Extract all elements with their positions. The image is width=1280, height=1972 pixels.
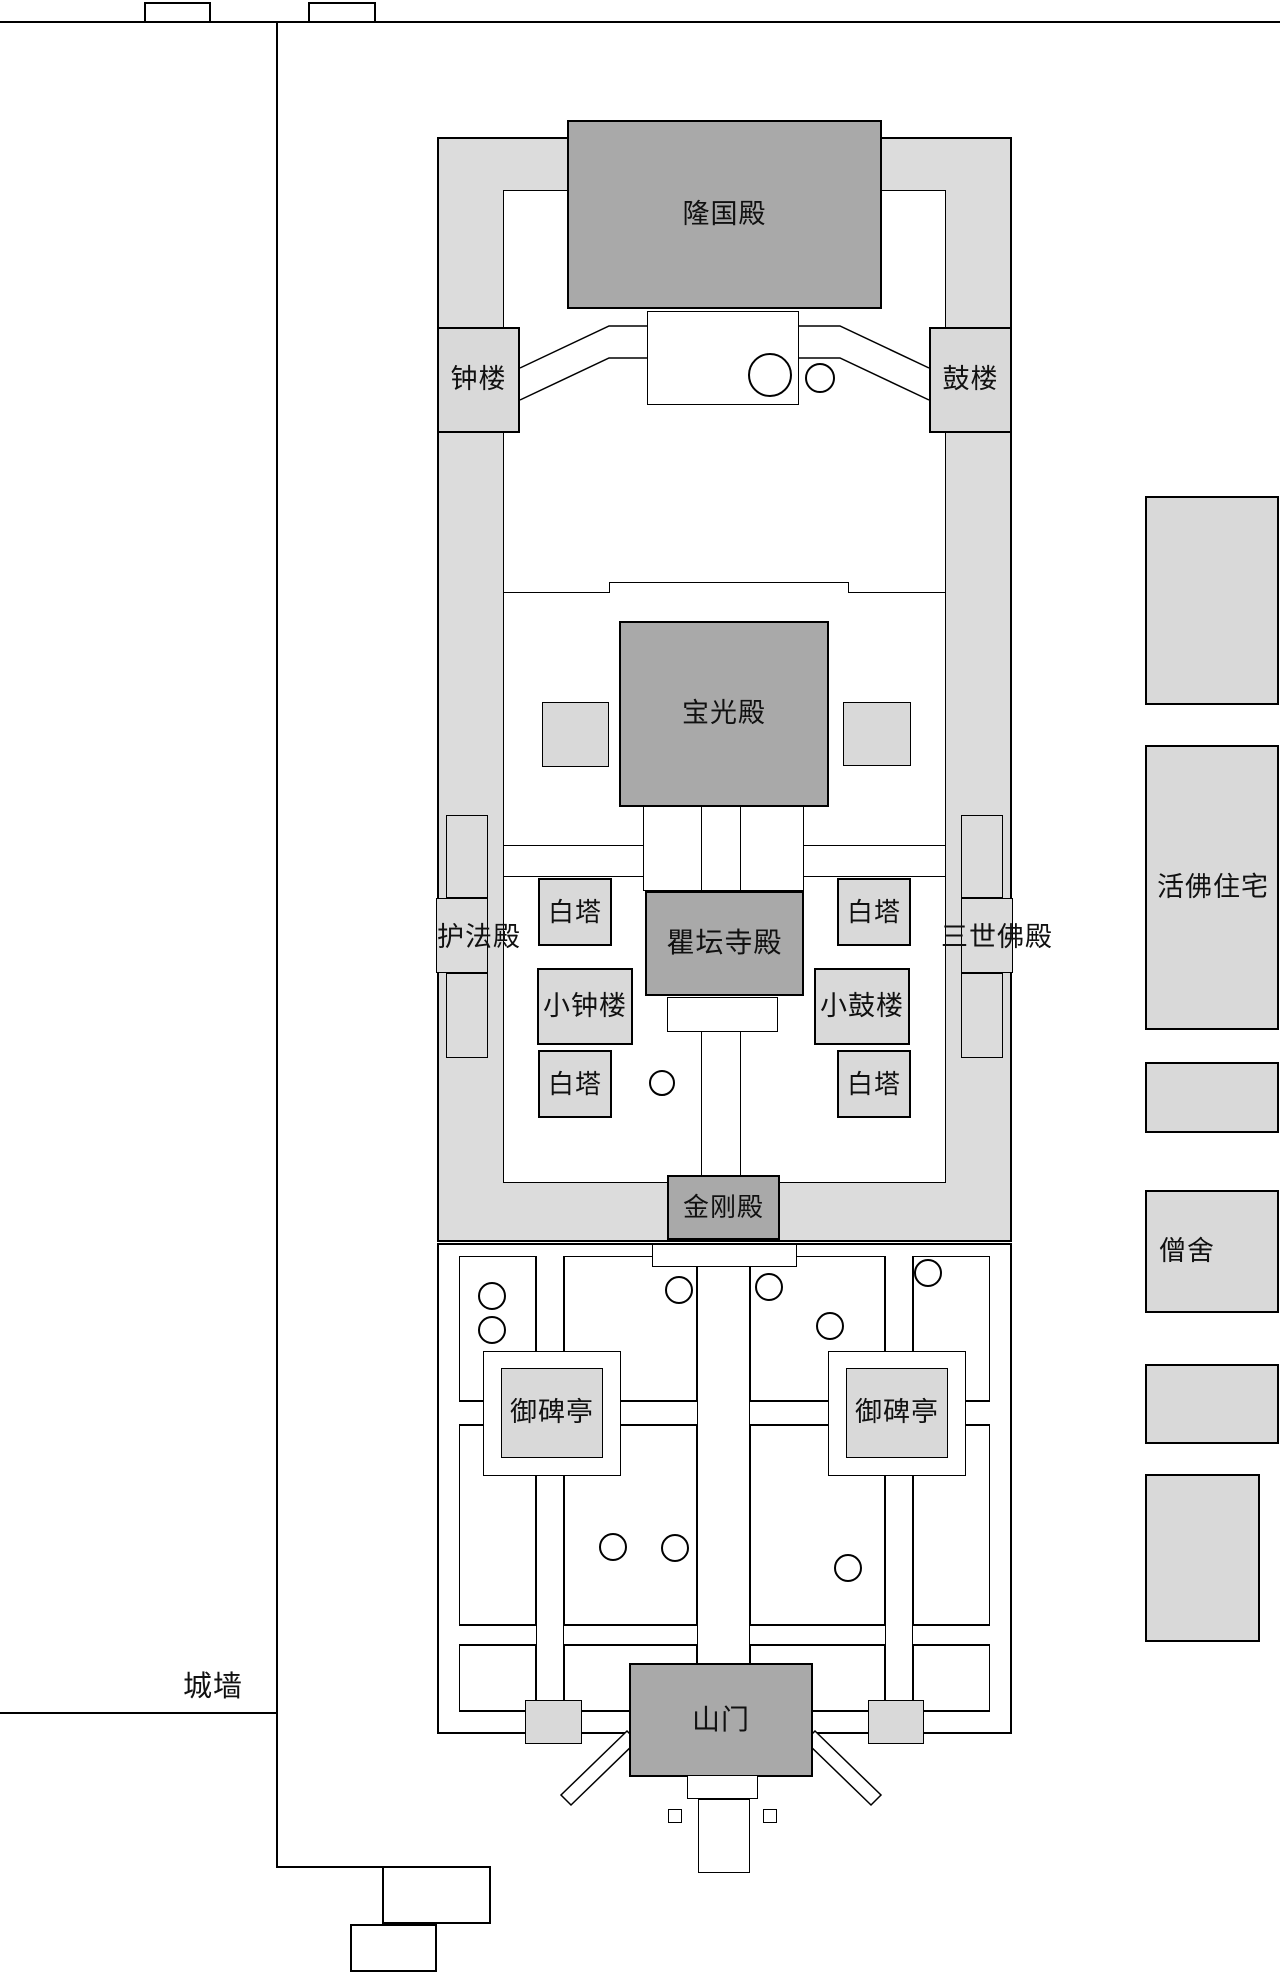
west-gallery-cell: [446, 815, 488, 898]
small-drum-tower-label: 小鼓楼: [820, 992, 904, 1022]
gate-porch: [687, 1775, 758, 1799]
drum-tower: 鼓楼: [929, 327, 1012, 433]
hall-steps: [643, 806, 804, 891]
white-pagoda-label: 白塔: [847, 1070, 901, 1099]
tree-circle: [834, 1554, 862, 1582]
residence-block: [1145, 1364, 1279, 1444]
terrace-circle-small: [805, 363, 835, 393]
white-pagoda-label: 白塔: [847, 898, 901, 927]
stele-pavilion-label: 御碑亭: [855, 1398, 939, 1428]
white-pagoda-label: 白塔: [548, 1070, 602, 1099]
gate-pad-east: [868, 1700, 924, 1744]
east-gallery-cell: [961, 815, 1003, 898]
small-drum-tower: 小鼓楼: [814, 968, 910, 1045]
small-bell-tower-label: 小钟楼: [543, 992, 627, 1022]
residence-block: [1145, 496, 1279, 705]
mountain-gate: 山门: [629, 1663, 813, 1777]
axis-path-line: [740, 1032, 741, 1175]
cross-path-line: [503, 876, 643, 877]
tree-circle: [816, 1312, 844, 1340]
three-buddha-hall-label: 三世佛殿: [941, 915, 1053, 954]
gate-pad-west: [525, 1700, 582, 1744]
tree-circle: [478, 1282, 506, 1310]
qutan-temple-hall-label: 瞿坛寺殿: [666, 928, 782, 959]
tree-circle: [914, 1259, 942, 1287]
side-platform: [542, 702, 609, 767]
cross-path-line: [503, 845, 643, 846]
cross-path-line: [804, 845, 946, 846]
vajra-hall: 金刚殿: [667, 1175, 780, 1240]
baoguang-hall: 宝光殿: [619, 621, 829, 807]
monk-quarters: 僧舍: [1145, 1190, 1279, 1313]
baoguang-hall-label: 宝光殿: [682, 699, 766, 729]
tree-circle: [755, 1273, 783, 1301]
longguo-hall-label: 隆国殿: [683, 200, 767, 230]
living-buddha-residence-label: 活佛住宅: [1157, 873, 1269, 903]
court-wall-step: [848, 582, 849, 593]
court-wall-line: [609, 582, 848, 583]
hufa-hall-label: 护法殿: [437, 915, 521, 954]
small-bell-tower: 小钟楼: [537, 968, 633, 1045]
tree-circle: [665, 1276, 693, 1304]
mountain-gate-label: 山门: [692, 1705, 750, 1736]
court-circle: [649, 1070, 675, 1096]
hall-steps: [667, 997, 778, 1032]
white-pagoda-ne: 白塔: [837, 878, 911, 946]
residence-block: [1145, 1062, 1279, 1133]
white-pagoda-se: 白塔: [837, 1050, 911, 1118]
stele-pavilion-west: 御碑亭: [501, 1368, 603, 1458]
residence-block: [1145, 1474, 1260, 1642]
stele-pavilion-label: 御碑亭: [510, 1398, 594, 1428]
axis-path-line: [740, 806, 741, 891]
axis-path-line: [701, 806, 702, 891]
white-pagoda-sw: 白塔: [538, 1050, 612, 1118]
white-pagoda-nw: 白塔: [538, 878, 612, 946]
flagpole-base: [668, 1809, 682, 1823]
court-wall-step: [609, 582, 610, 593]
gate-approach: [698, 1799, 750, 1873]
east-gallery-cell: [961, 973, 1003, 1058]
tree-circle: [599, 1533, 627, 1561]
qutan-temple-hall: 瞿坛寺殿: [645, 891, 804, 996]
bell-tower-label: 钟楼: [451, 365, 507, 395]
bell-tower: 钟楼: [437, 327, 520, 433]
vajra-hall-label: 金刚殿: [683, 1193, 764, 1222]
cross-path-line: [804, 876, 946, 877]
axis-path-line: [701, 1032, 702, 1175]
tree-circle: [661, 1534, 689, 1562]
flagpole-base: [763, 1809, 777, 1823]
longguo-hall: 隆国殿: [567, 120, 882, 309]
monk-quarters-label: 僧舍: [1159, 1237, 1215, 1267]
terrace-circle-large: [748, 353, 792, 397]
temple-site-plan: 城墙 隆国殿 钟楼 鼓楼: [0, 0, 1280, 1972]
drum-tower-label: 鼓楼: [943, 365, 999, 395]
tree-circle: [478, 1316, 506, 1344]
court-wall-line: [848, 592, 946, 593]
side-platform: [843, 702, 911, 766]
living-buddha-residence: 活佛住宅: [1145, 745, 1279, 1030]
white-pagoda-label: 白塔: [548, 898, 602, 927]
west-gallery-cell: [446, 973, 488, 1058]
court-wall-line: [503, 592, 609, 593]
stele-pavilion-east: 御碑亭: [846, 1368, 948, 1458]
